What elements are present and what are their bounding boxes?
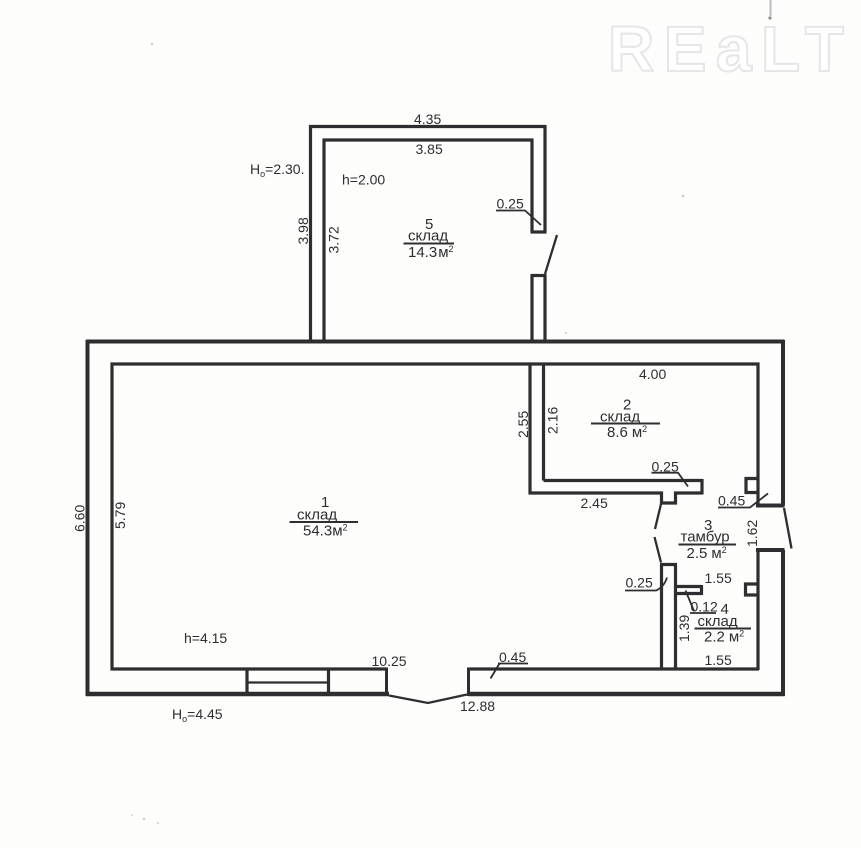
svg-text:0.45: 0.45 xyxy=(718,493,745,509)
svg-text:склад: склад xyxy=(297,507,337,524)
svg-text:0.25: 0.25 xyxy=(626,575,653,591)
svg-text:h=4.15: h=4.15 xyxy=(184,630,227,646)
svg-text:2.55: 2.55 xyxy=(515,411,531,438)
svg-text:0.25: 0.25 xyxy=(497,196,524,212)
svg-text:14.3м2: 14.3м2 xyxy=(408,244,454,261)
svg-text:10.25: 10.25 xyxy=(372,653,407,669)
svg-text:2.5м2: 2.5м2 xyxy=(687,545,727,562)
svg-text:12.88: 12.88 xyxy=(460,698,495,714)
svg-text:3.72: 3.72 xyxy=(326,226,342,253)
svg-text:54.3м2: 54.3м2 xyxy=(303,523,348,540)
svg-text:1.39: 1.39 xyxy=(676,615,692,642)
svg-text:4.35: 4.35 xyxy=(414,111,441,127)
svg-text:8.6м2: 8.6м2 xyxy=(607,424,647,441)
svg-text:3.98: 3.98 xyxy=(295,217,311,244)
svg-text:2.45: 2.45 xyxy=(581,495,608,511)
svg-text:REaLT: REaLT xyxy=(608,13,853,85)
svg-text:2.2м2: 2.2м2 xyxy=(704,629,744,646)
svg-text:6.60: 6.60 xyxy=(72,505,88,532)
svg-text:h=2.00: h=2.00 xyxy=(342,172,385,188)
svg-text:0.25: 0.25 xyxy=(652,459,679,475)
svg-text:склад: склад xyxy=(408,228,448,245)
svg-text:тамбур: тамбур xyxy=(681,529,730,546)
svg-text:4.00: 4.00 xyxy=(639,366,666,382)
svg-text:5.79: 5.79 xyxy=(112,502,128,529)
svg-text:склад: склад xyxy=(698,613,738,630)
svg-text:Ho=2.30.: Ho=2.30. xyxy=(250,161,304,179)
svg-text:3.85: 3.85 xyxy=(416,141,443,157)
svg-text:Ho=4.45: Ho=4.45 xyxy=(172,706,223,724)
svg-text:1.55: 1.55 xyxy=(705,652,732,668)
svg-text:1.62: 1.62 xyxy=(744,520,760,547)
svg-text:2.16: 2.16 xyxy=(545,407,561,434)
svg-text:1.55: 1.55 xyxy=(705,570,732,586)
svg-text:0.45: 0.45 xyxy=(499,649,526,665)
